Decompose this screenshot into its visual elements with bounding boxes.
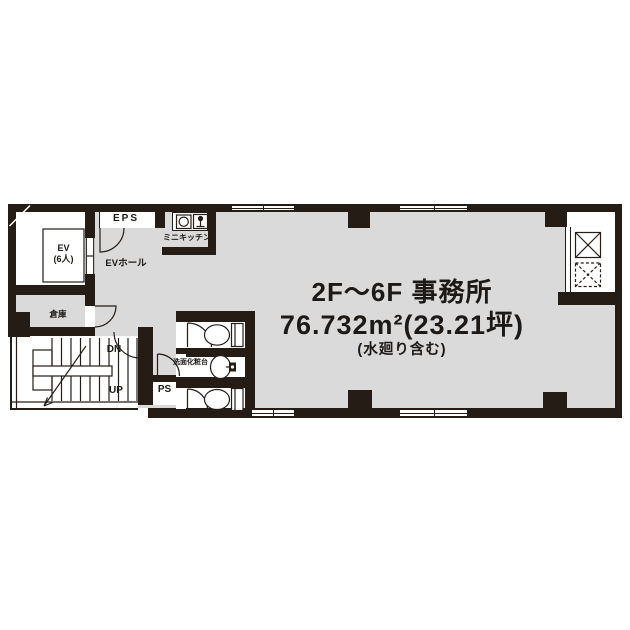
storage-label: 倉庫 [36,308,80,321]
window-icon [400,204,467,212]
wall-kitchen-bottom [162,247,216,255]
wall-shaft-bottom [558,292,622,305]
kitchen-counter [172,212,208,231]
column-bottom-1 [348,390,372,418]
wc2-door-opening [176,388,186,409]
floorplan: EPS ミニキッチン EV (6人) EVホール 倉庫 DN UP PS 洗面化… [0,0,630,630]
unit-note: (水廻り含む) [320,341,484,359]
stairs-up-label: UP [102,384,130,397]
wall-right [615,204,622,418]
wc2-room [186,388,245,410]
column-bottom-2 [543,392,567,418]
wall-wc-divider2 [176,377,245,388]
mini-kitchen-label: ミニキッチン [158,231,216,244]
vanity-label: 洗面化粧台 [168,357,213,368]
wall-bottom-a [148,408,252,418]
window-icon [232,204,294,212]
window-icon [400,408,467,418]
storage-door-opening [85,306,95,327]
wall-top-a [8,204,232,212]
wall-ev-right-b [85,274,95,306]
wall-stair-right [138,327,153,405]
unit-area: 76.732m²(23.21坪) [250,309,554,341]
elevator-label-line2: (6人) [54,255,74,264]
wall-kitchen-right [208,204,216,253]
wall-bottom-b [294,408,348,418]
wall-ev-right-a [85,204,95,238]
column-top-1 [348,204,370,228]
elevator-label: EV (6人) [43,241,84,267]
ps-label: PS [152,383,177,396]
column-top-2 [545,204,567,227]
wall-bottom-c [372,408,400,418]
elevator-door-opening [85,238,95,274]
wall-kitchen-left [157,204,165,228]
wall-top-b [294,204,400,212]
shaft-room [567,212,615,292]
wall-ev-bottom [8,285,95,295]
wc1-door-opening [176,322,186,348]
wc1-room [186,322,245,348]
wall-wc-top [176,311,255,322]
wall-ps-top [148,375,178,382]
stairs-dn-label: DN [100,343,128,356]
wall-storage-bottom [8,327,95,336]
elevator-label-line1: EV [57,244,69,253]
ev-hall-label: EVホール [97,257,155,270]
eps-label: EPS [101,212,151,226]
shaft-partition [565,227,571,292]
window-icon [252,408,294,418]
wall-wc-divider1 [176,348,245,357]
unit-title: 2F〜6F 事務所 [270,277,534,307]
